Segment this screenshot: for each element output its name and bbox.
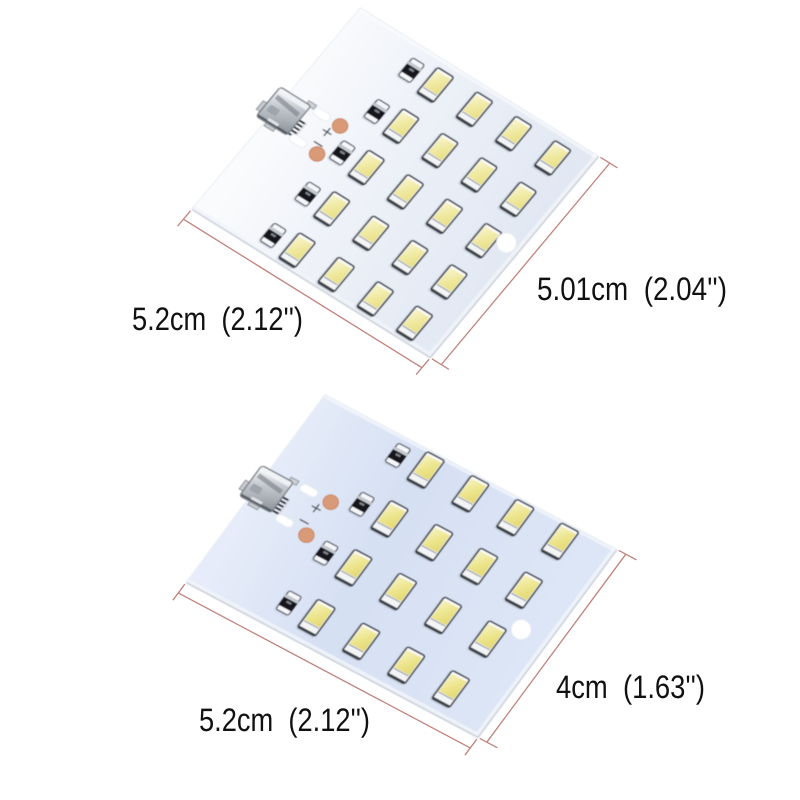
svg-text:5.01cm (2.04''): 5.01cm (2.04'') — [537, 271, 727, 307]
svg-text:5.2cm (2.12''): 5.2cm (2.12'') — [132, 301, 303, 337]
svg-text:5.2cm (2.12''): 5.2cm (2.12'') — [199, 702, 370, 738]
svg-text:4cm (1.63''): 4cm (1.63'') — [556, 669, 705, 705]
